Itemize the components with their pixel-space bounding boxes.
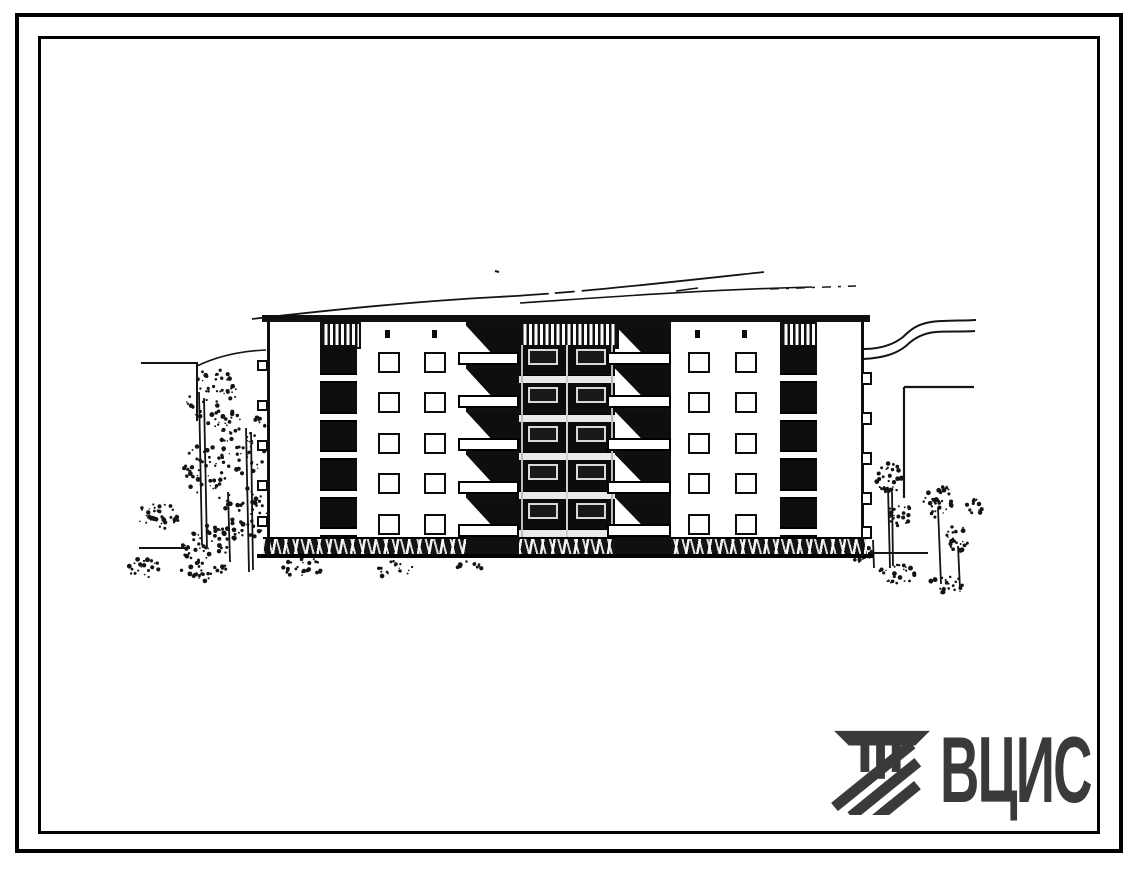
roof-vent	[695, 330, 700, 338]
balcony-strip-d-slab	[780, 527, 817, 537]
window	[378, 514, 400, 535]
window	[378, 433, 400, 454]
roof-vent	[432, 330, 437, 338]
window	[424, 473, 446, 494]
window	[688, 352, 710, 373]
balcony-strip-a-loggia	[320, 499, 357, 527]
roof-vent	[742, 330, 747, 338]
side-balcony-tick-right	[861, 492, 872, 505]
vcis-emblem-hatched-icon	[830, 725, 934, 815]
window	[378, 352, 400, 373]
center-core-window	[528, 426, 558, 442]
window	[735, 352, 757, 373]
balcony-strip-d-loggia	[780, 460, 817, 488]
roof-slab	[262, 315, 870, 322]
balcony-strip-a-slab	[320, 489, 357, 499]
plinth-dark-segment	[615, 537, 671, 554]
side-balcony-tick-left	[257, 400, 268, 411]
balcony-diag-c-soffit	[615, 408, 671, 412]
balcony-diag-c-balcony-slab	[607, 352, 671, 365]
window	[688, 433, 710, 454]
side-balcony-tick-left	[257, 516, 268, 527]
balcony-strip-a-slab	[320, 373, 357, 383]
window	[735, 392, 757, 413]
side-balcony-tick-right	[861, 452, 872, 465]
window	[378, 392, 400, 413]
window	[424, 514, 446, 535]
balcony-strip-d-loggia	[780, 383, 817, 411]
balcony-diag-b-soffit	[466, 408, 519, 412]
balcony-strip-a-loggia	[320, 460, 357, 488]
side-balcony-tick-left	[257, 480, 268, 491]
vcis-logo: ВЦИС	[830, 722, 1110, 817]
speckle-strip	[817, 322, 841, 537]
side-balcony-tick-right	[861, 412, 872, 425]
balcony-diag-b-soffit	[466, 451, 519, 455]
center-core-window	[576, 349, 606, 365]
center-core-window	[576, 426, 606, 442]
window	[735, 514, 757, 535]
center-core-window	[528, 349, 558, 365]
balcony-strip-a-loggia	[320, 422, 357, 450]
drawing-sheet: ВЦИС	[0, 0, 1139, 869]
balcony-diag-c-balcony-slab	[607, 524, 671, 537]
window	[688, 392, 710, 413]
roof-vent	[487, 330, 492, 338]
window	[735, 473, 757, 494]
window	[424, 392, 446, 413]
balcony-strip-d-loggia	[780, 499, 817, 527]
building-right-edge	[861, 315, 864, 556]
center-core-window	[528, 464, 558, 480]
center-core-window	[528, 503, 558, 519]
center-core-divider	[566, 345, 568, 537]
window	[424, 352, 446, 373]
balcony-diag-b-soffit	[466, 494, 519, 498]
ground-line	[257, 554, 873, 558]
window	[378, 473, 400, 494]
balcony-diag-b-soffit	[466, 322, 519, 326]
balcony-diag-b-balcony-slab	[458, 481, 519, 494]
balcony-strip-a-slab	[320, 450, 357, 460]
balcony-diag-c-balcony-slab	[607, 395, 671, 408]
vcis-logo-text: ВЦИС	[940, 725, 1091, 815]
balcony-diag-b-balcony-slab	[458, 352, 519, 365]
balcony-strip-d-slab	[780, 450, 817, 460]
window	[688, 514, 710, 535]
plinth-dark-segment	[466, 537, 519, 554]
plinth-rubble	[263, 537, 867, 554]
center-core-edge-line	[521, 345, 523, 537]
balcony-strip-d-loggia	[780, 345, 817, 373]
roof-vent	[654, 330, 659, 338]
balcony-diag-c-balcony-slab	[607, 481, 671, 494]
balcony-strip-a-slab	[320, 527, 357, 537]
center-core-window	[576, 503, 606, 519]
balcony-strip-d-slab	[780, 373, 817, 383]
balcony-strip-d-loggia	[780, 422, 817, 450]
center-core-window	[576, 387, 606, 403]
balcony-strip-d-slab	[780, 412, 817, 422]
side-balcony-tick-right	[861, 372, 872, 385]
side-balcony-tick-right	[861, 526, 872, 539]
balcony-diag-b-balcony-slab	[458, 395, 519, 408]
balcony-diag-c-soffit	[615, 322, 671, 326]
balcony-diag-b-balcony-slab	[458, 524, 519, 537]
balcony-diag-c-soffit	[615, 365, 671, 369]
balcony-strip-a-loggia	[320, 383, 357, 411]
balcony-diag-c-soffit	[615, 494, 671, 498]
balcony-diag-c-balcony-slab	[607, 438, 671, 451]
window	[424, 433, 446, 454]
window	[688, 473, 710, 494]
side-balcony-tick-left	[257, 360, 268, 371]
balcony-strip-a-slab	[320, 412, 357, 422]
window	[735, 433, 757, 454]
balcony-diag-b-soffit	[466, 365, 519, 369]
balcony-diag-c-soffit	[615, 451, 671, 455]
center-core-window	[576, 464, 606, 480]
side-balcony-tick-left	[257, 440, 268, 451]
balcony-strip-a-loggia	[320, 345, 357, 373]
center-core-window	[528, 387, 558, 403]
balcony-diag-b-balcony-slab	[458, 438, 519, 451]
balcony-strip-d-slab	[780, 489, 817, 499]
roof-vent	[385, 330, 390, 338]
